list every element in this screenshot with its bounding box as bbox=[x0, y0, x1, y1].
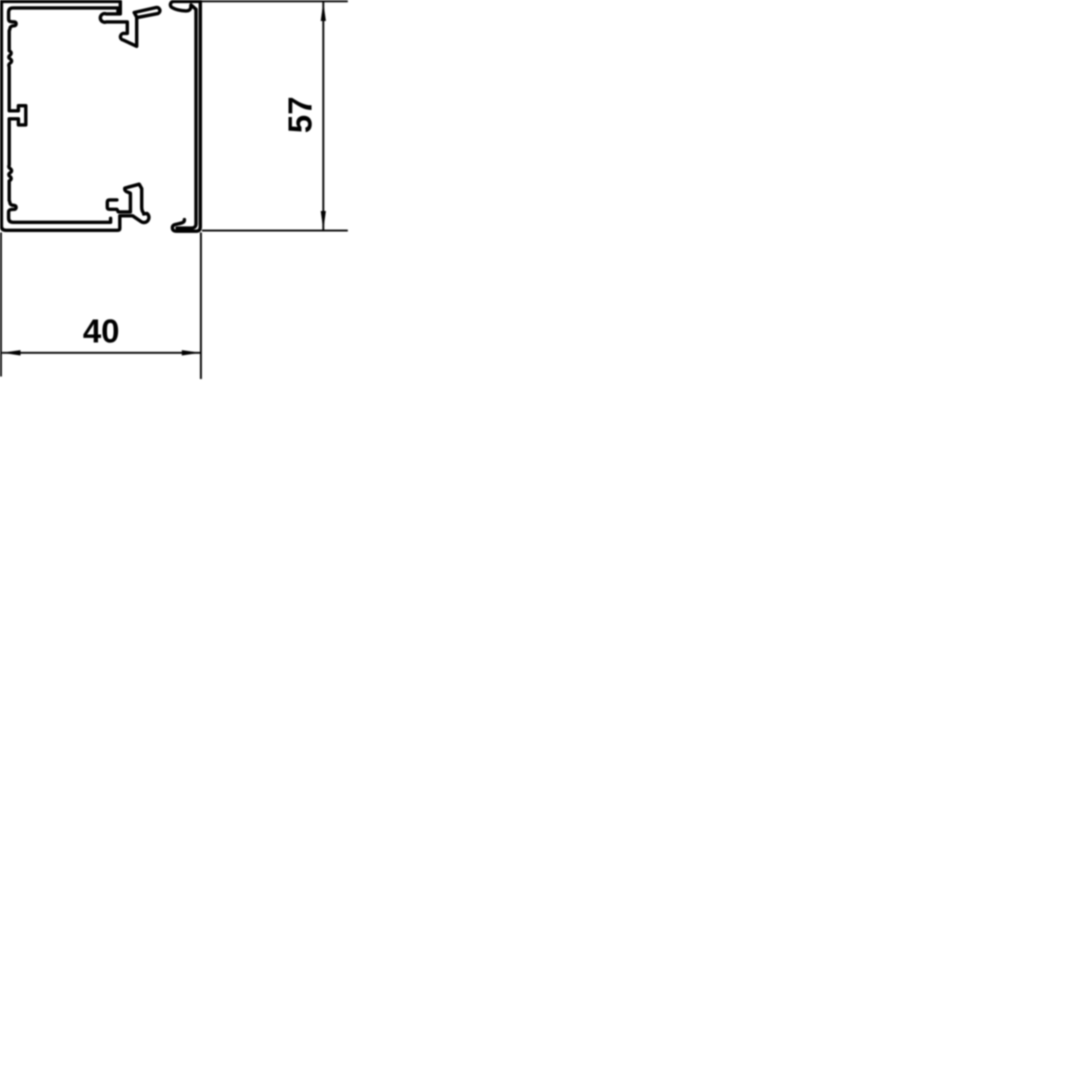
svg-text:57: 57 bbox=[282, 96, 319, 133]
svg-text:40: 40 bbox=[83, 312, 120, 349]
